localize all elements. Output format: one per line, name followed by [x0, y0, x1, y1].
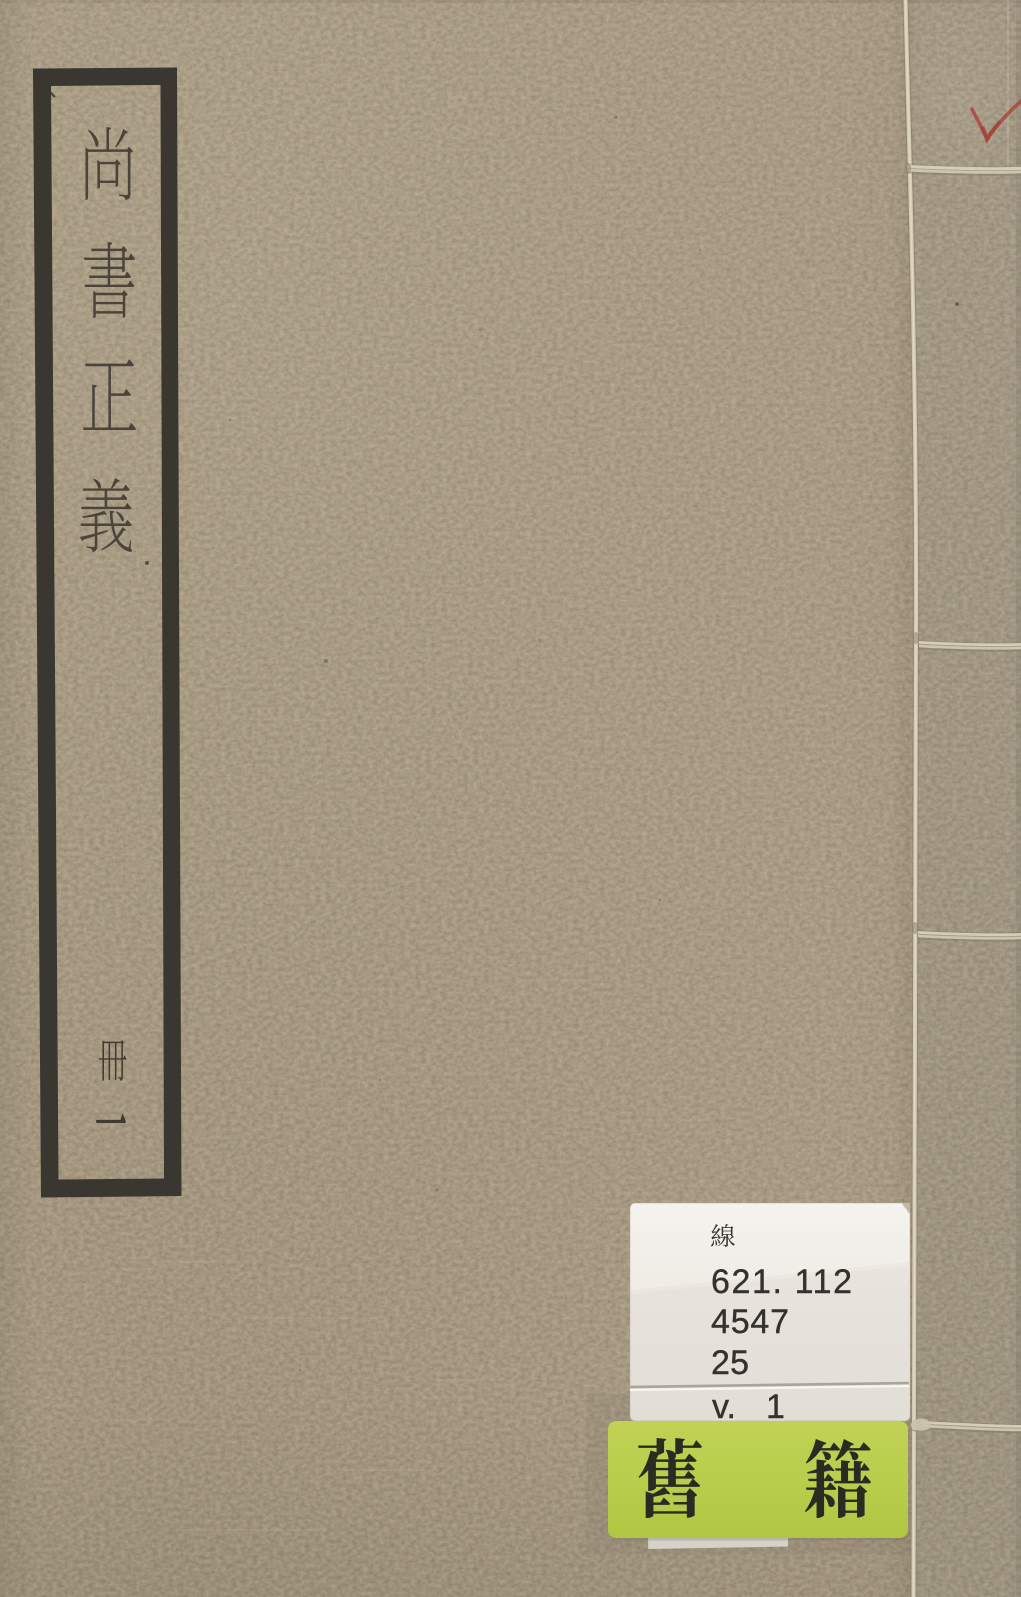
- svg-text:v.: v.: [712, 1388, 736, 1426]
- svg-text:621. 112: 621. 112: [711, 1263, 852, 1301]
- svg-text:1: 1: [766, 1388, 785, 1426]
- svg-text:25: 25: [711, 1344, 749, 1382]
- svg-text:4547: 4547: [711, 1303, 789, 1341]
